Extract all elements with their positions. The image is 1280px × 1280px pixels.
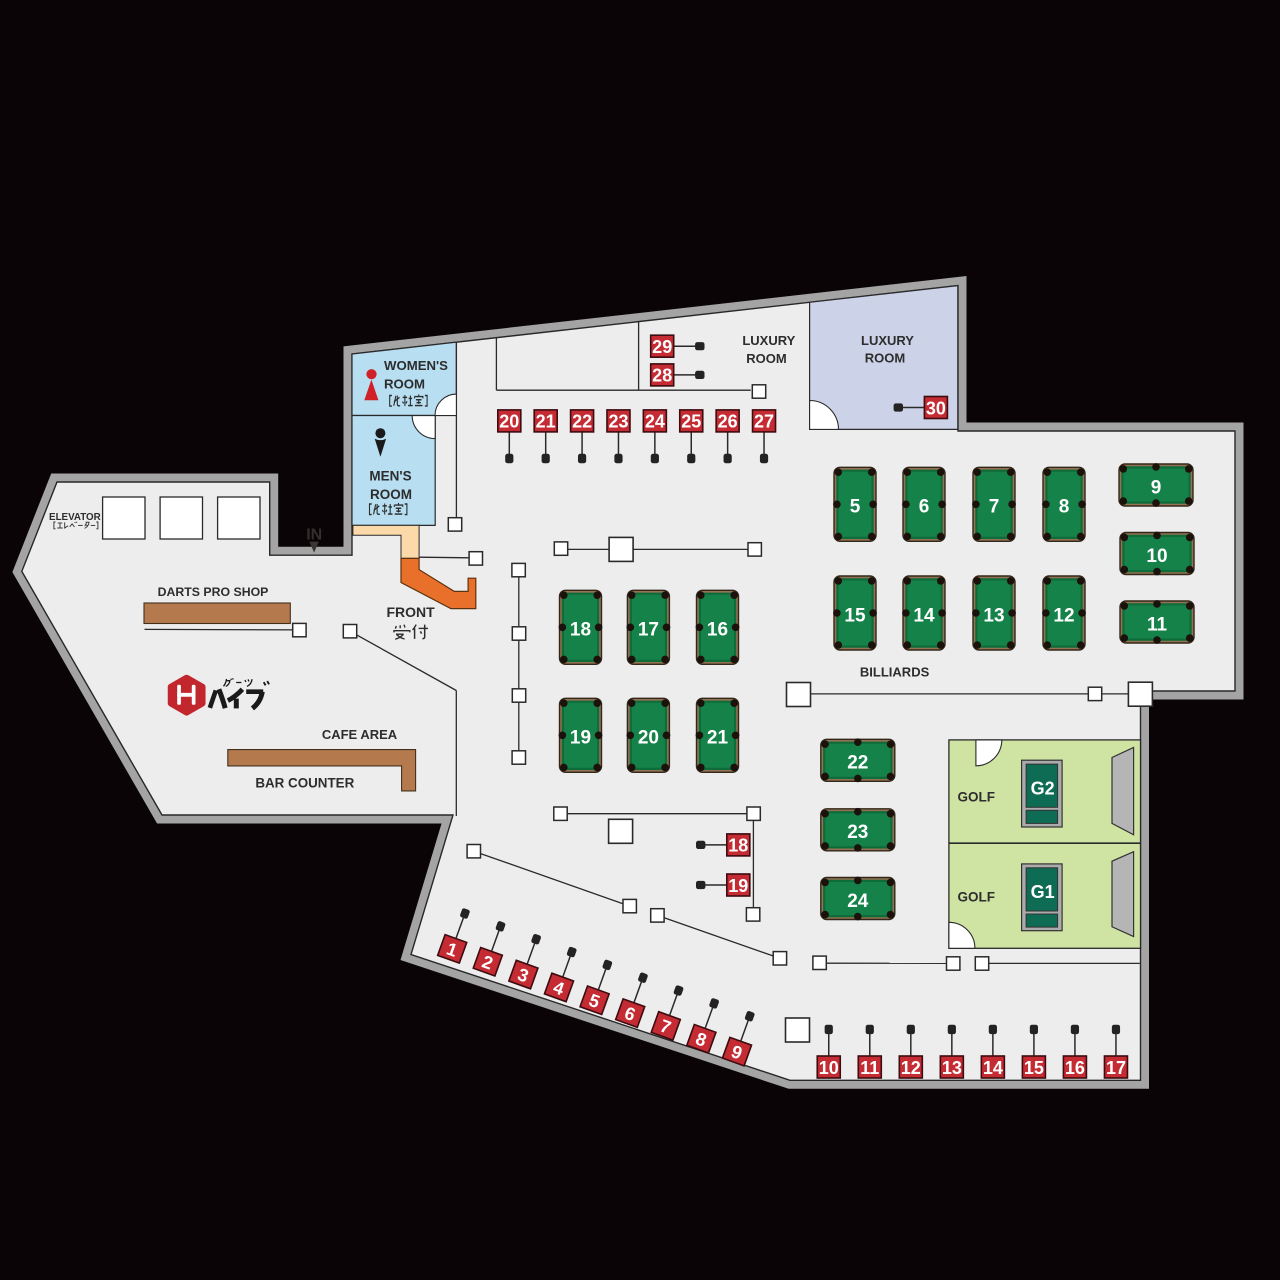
svg-text:17: 17 — [1106, 1058, 1126, 1078]
svg-text:11: 11 — [1147, 614, 1168, 635]
svg-text:GOLF: GOLF — [958, 790, 996, 805]
svg-text:12: 12 — [901, 1058, 921, 1078]
svg-text:11: 11 — [860, 1058, 879, 1078]
svg-text:ROOM: ROOM — [370, 487, 412, 502]
svg-text:6: 6 — [919, 497, 930, 518]
svg-text:IN: IN — [306, 527, 322, 544]
svg-text:8: 8 — [1059, 497, 1070, 518]
svg-text:G2: G2 — [1031, 778, 1055, 798]
svg-text:10: 10 — [1146, 546, 1167, 567]
svg-text:DARTS PRO SHOP: DARTS PRO SHOP — [158, 585, 269, 599]
svg-text:GOLF: GOLF — [958, 890, 996, 905]
svg-text:ROOM: ROOM — [746, 351, 786, 366]
svg-text:ROOM: ROOM — [384, 376, 425, 391]
svg-text:28: 28 — [652, 366, 672, 386]
svg-text:21: 21 — [707, 728, 729, 749]
svg-text:ELEVATOR: ELEVATOR — [49, 512, 101, 523]
svg-text:30: 30 — [926, 398, 946, 418]
svg-text:18: 18 — [728, 836, 748, 856]
svg-text:22: 22 — [572, 412, 592, 432]
svg-text:23: 23 — [847, 822, 868, 843]
svg-text:19: 19 — [728, 876, 748, 896]
svg-text:14: 14 — [913, 605, 935, 626]
svg-text:15: 15 — [844, 605, 866, 626]
svg-text:ROOM: ROOM — [865, 351, 905, 366]
svg-text:WOMEN'S: WOMEN'S — [384, 358, 448, 373]
svg-text:23: 23 — [608, 412, 628, 432]
svg-text:19: 19 — [570, 728, 591, 749]
svg-text:16: 16 — [707, 620, 728, 641]
svg-text:20: 20 — [499, 412, 519, 432]
svg-text:10: 10 — [819, 1058, 839, 1078]
svg-text:27: 27 — [754, 412, 774, 432]
svg-text:20: 20 — [638, 728, 659, 749]
svg-text:22: 22 — [847, 753, 868, 774]
svg-text:17: 17 — [638, 620, 659, 641]
svg-text:BILLIARDS: BILLIARDS — [860, 664, 930, 679]
svg-text:5: 5 — [850, 497, 861, 518]
svg-text:26: 26 — [718, 412, 738, 432]
svg-text:21: 21 — [536, 412, 556, 432]
svg-text:16: 16 — [1065, 1058, 1085, 1078]
svg-text:13: 13 — [983, 605, 1004, 626]
svg-text:FRONT: FRONT — [386, 604, 435, 620]
svg-text:29: 29 — [652, 337, 672, 357]
svg-text:15: 15 — [1024, 1058, 1044, 1078]
svg-text:25: 25 — [681, 412, 701, 432]
svg-text:12: 12 — [1053, 605, 1074, 626]
svg-text:LUXURY: LUXURY — [861, 333, 914, 348]
svg-text:18: 18 — [570, 620, 591, 641]
svg-text:7: 7 — [989, 497, 1000, 518]
svg-text:14: 14 — [983, 1058, 1003, 1078]
svg-text:9: 9 — [1151, 477, 1162, 498]
svg-text:MEN'S: MEN'S — [369, 469, 411, 484]
svg-text:24: 24 — [645, 412, 665, 432]
svg-text:LUXURY: LUXURY — [742, 333, 795, 348]
svg-text:13: 13 — [942, 1058, 962, 1078]
svg-text:BAR COUNTER: BAR COUNTER — [255, 776, 354, 791]
svg-text:24: 24 — [847, 891, 869, 912]
svg-text:G1: G1 — [1031, 882, 1055, 902]
svg-text:CAFE AREA: CAFE AREA — [322, 727, 398, 742]
